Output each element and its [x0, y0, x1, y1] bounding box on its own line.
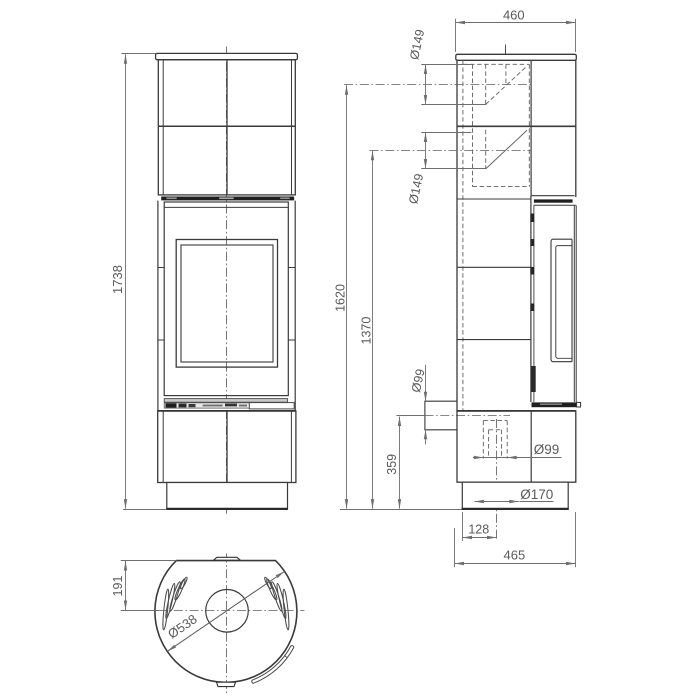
svg-text:359: 359: [385, 454, 399, 475]
svg-text:Ø99: Ø99: [534, 442, 560, 457]
svg-text:1620: 1620: [333, 284, 347, 312]
svg-text:460: 460: [503, 8, 525, 23]
svg-text:128: 128: [468, 523, 489, 537]
svg-text:1738: 1738: [110, 265, 125, 294]
svg-text:1370: 1370: [360, 317, 374, 345]
svg-text:465: 465: [504, 548, 526, 563]
svg-text:191: 191: [111, 576, 125, 597]
svg-text:Ø170: Ø170: [520, 487, 553, 502]
